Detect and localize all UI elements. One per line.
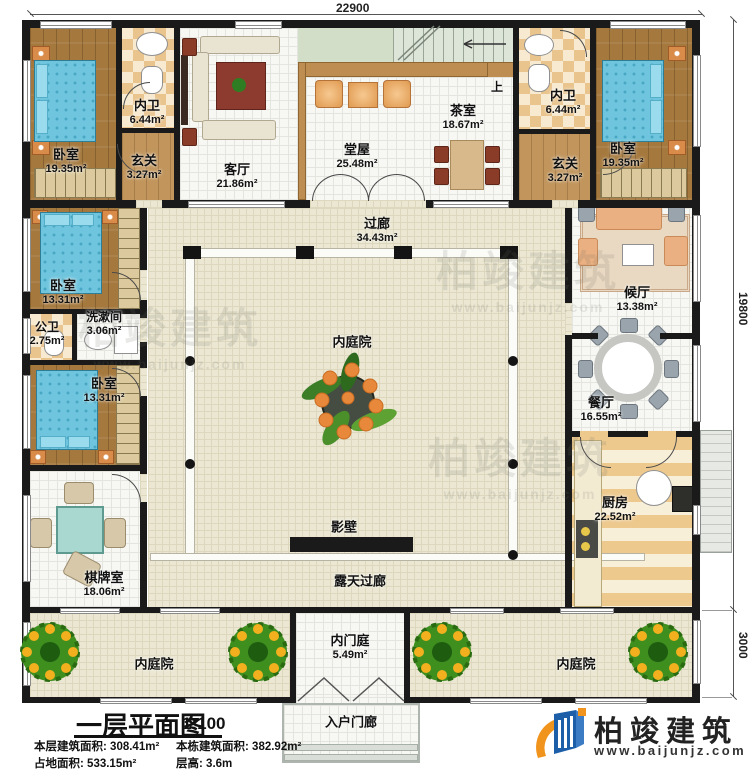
side-door-opening [693, 505, 701, 535]
room-label-corridor: 过廊 34.43m² [357, 217, 398, 245]
sofa [200, 36, 280, 54]
sofa [192, 52, 209, 122]
room-label-bedroom-l2: 卧室 13.31m² [43, 279, 84, 307]
window [235, 21, 282, 29]
wall [174, 28, 180, 200]
window [693, 620, 701, 684]
window [23, 60, 31, 142]
room-label-screen-wall: 影壁 [331, 521, 357, 536]
coffee-table [622, 244, 654, 266]
door-opening [140, 270, 147, 300]
dimension-ext [702, 610, 732, 611]
window [160, 608, 220, 614]
pillow [36, 64, 48, 98]
window [185, 698, 257, 704]
staircase [393, 28, 513, 62]
sink [136, 32, 168, 56]
room-label-open-corridor: 露天过廊 [334, 575, 386, 590]
pillow [72, 214, 94, 226]
sofa [596, 206, 662, 230]
room-label-bedroom-tl: 卧室 19.35m² [46, 148, 87, 176]
stat-floor-area: 本层建筑面积: 308.41m² [34, 738, 159, 754]
room-label-bath-tr: 内卫 6.44m² [546, 89, 581, 117]
window [60, 608, 120, 614]
wall [519, 129, 590, 134]
window [23, 622, 31, 686]
dimension-right-main-value: 19800 [736, 292, 750, 325]
wall [22, 20, 700, 28]
wall [565, 208, 572, 607]
armchair [315, 80, 343, 108]
toilet [528, 64, 550, 92]
wall [30, 360, 140, 365]
room-label-kitchen: 厨房 22.52m² [595, 496, 636, 524]
wall [590, 28, 596, 200]
window [560, 608, 614, 614]
floor-plan: 柏竣建筑 www.baijunjz.com 柏竣建筑 www.baijunjz.… [0, 0, 750, 775]
wall [116, 28, 122, 200]
nightstand [30, 450, 46, 464]
pillow [40, 436, 66, 448]
wall [140, 208, 147, 607]
hall-wood-trim [298, 62, 518, 77]
window [23, 495, 31, 582]
pillow [650, 100, 662, 134]
courtyard-frame-top [185, 248, 518, 258]
wall [513, 28, 519, 200]
column [296, 246, 314, 259]
column-dot [185, 356, 195, 366]
courtyard-frame-left [185, 248, 195, 560]
dining-table [594, 334, 662, 402]
dimension-top-value: 22900 [336, 1, 369, 15]
room-label-tea: 茶室 18.67m² [443, 104, 484, 132]
column-dot [185, 459, 195, 469]
room-label-entry-porch: 入户门廊 [325, 716, 377, 731]
chair [620, 404, 638, 419]
column [183, 246, 201, 259]
room-label-bedroom-tr: 卧室 19.35m² [603, 142, 644, 170]
kitchen-sink [636, 470, 672, 506]
chair [64, 482, 94, 504]
burner [581, 542, 590, 551]
column-dot [508, 550, 518, 560]
stove [576, 520, 598, 558]
pillow [650, 64, 662, 98]
nightstand [668, 46, 686, 61]
wall [72, 314, 77, 360]
courtyard-frame-right [508, 248, 518, 560]
wall [404, 613, 410, 697]
room-label-dining: 餐厅 16.55m² [581, 396, 622, 424]
dimension-line-right [733, 20, 734, 697]
column [394, 246, 412, 259]
chair [578, 360, 593, 378]
wall [122, 128, 174, 133]
window [693, 215, 701, 302]
column [500, 246, 518, 259]
tea-table [450, 140, 484, 190]
chair [485, 168, 500, 185]
wall [290, 613, 296, 697]
stat-land-area: 占地面积: 533.15m² [34, 755, 136, 771]
window [610, 21, 686, 29]
stat-floor-height: 层高: 3.6m [176, 755, 232, 771]
brand-site: www.baijunjz.com [594, 743, 746, 758]
window [23, 218, 31, 292]
wall [30, 465, 140, 471]
hall-door-opening [310, 200, 426, 208]
foyer-door-opening [552, 200, 578, 208]
chair [104, 518, 126, 548]
door-opening [140, 474, 147, 502]
nightstand [668, 140, 686, 155]
room-label-foyer-tl: 玄关 3.27m² [127, 154, 162, 182]
dimension-right-lower-value: 3000 [736, 632, 750, 659]
window [433, 201, 509, 208]
room-label-inner-courtyard: 内庭院 [332, 336, 371, 351]
column-dot [508, 459, 518, 469]
porch-step [284, 744, 418, 751]
room-label-public-bath: 公卫 2.75m² [30, 321, 65, 347]
window [100, 698, 172, 704]
window [575, 698, 647, 704]
fridge [672, 486, 694, 512]
tv-cabinet [181, 55, 188, 125]
plant-decor [232, 78, 246, 92]
plan-scale: 1:100 [182, 714, 225, 734]
room-label-chess-room: 棋牌室 18.06m² [84, 571, 125, 599]
brand-logo-icon [534, 706, 590, 766]
burner [581, 527, 590, 536]
sofa [202, 120, 276, 140]
chair [664, 360, 679, 378]
window [693, 55, 701, 147]
porch-step [284, 754, 418, 761]
room-label-courtyard-br: 内庭院 [556, 658, 595, 673]
room-label-waiting: 候厅 13.38m² [617, 286, 658, 314]
chair [434, 146, 449, 163]
dimension-ext [702, 697, 732, 698]
pillow [68, 436, 90, 448]
chair [485, 146, 500, 163]
nightstand [102, 210, 118, 224]
armchair [578, 238, 598, 266]
chair [434, 168, 449, 185]
room-label-courtyard-bl: 内庭院 [134, 658, 173, 673]
wall [660, 333, 692, 339]
stairs-up-label: 上 [491, 81, 503, 95]
accent-chair [182, 128, 197, 146]
stair-landing [298, 28, 393, 62]
entry-opening [296, 697, 404, 703]
accent-chair [182, 38, 197, 56]
armchair [383, 80, 411, 108]
window [23, 375, 31, 449]
window [40, 21, 112, 29]
window [188, 201, 285, 208]
door-opening [140, 368, 147, 396]
column-dot [508, 356, 518, 366]
room-label-living: 客厅 21.86m² [217, 163, 258, 191]
armchair [664, 236, 688, 266]
sink [524, 34, 554, 56]
room-label-bath-tl: 内卫 6.44m² [130, 99, 165, 127]
stat-building-area: 本栋建筑面积: 382.92m² [176, 738, 301, 754]
chair [30, 518, 52, 548]
chair [620, 318, 638, 333]
door-opening [565, 303, 572, 335]
side-table [668, 206, 685, 222]
wall [572, 333, 598, 339]
room-label-bedroom-l3: 卧室 13.31m² [84, 377, 125, 405]
foyer-door-opening [136, 200, 162, 208]
nightstand [32, 46, 50, 61]
window [693, 345, 701, 422]
nightstand [98, 450, 114, 464]
window [450, 608, 504, 614]
side-table [578, 206, 595, 222]
room-label-foyer-tr: 玄关 3.27m² [548, 157, 583, 185]
window [470, 698, 542, 704]
side-table [348, 82, 378, 108]
chess-table [56, 506, 104, 554]
room-label-hall: 堂屋 25.48m² [337, 143, 378, 171]
screen-wall-bar [290, 537, 413, 552]
hall-wood-trim-left [298, 62, 306, 200]
pillow [44, 214, 70, 226]
room-label-inner-gate: 内门庭 5.49m² [330, 634, 369, 662]
door-opening [140, 318, 147, 342]
pillow [36, 100, 48, 134]
side-porch-steps [700, 430, 732, 553]
room-label-washroom: 洗漱间 3.06m² [86, 311, 122, 337]
